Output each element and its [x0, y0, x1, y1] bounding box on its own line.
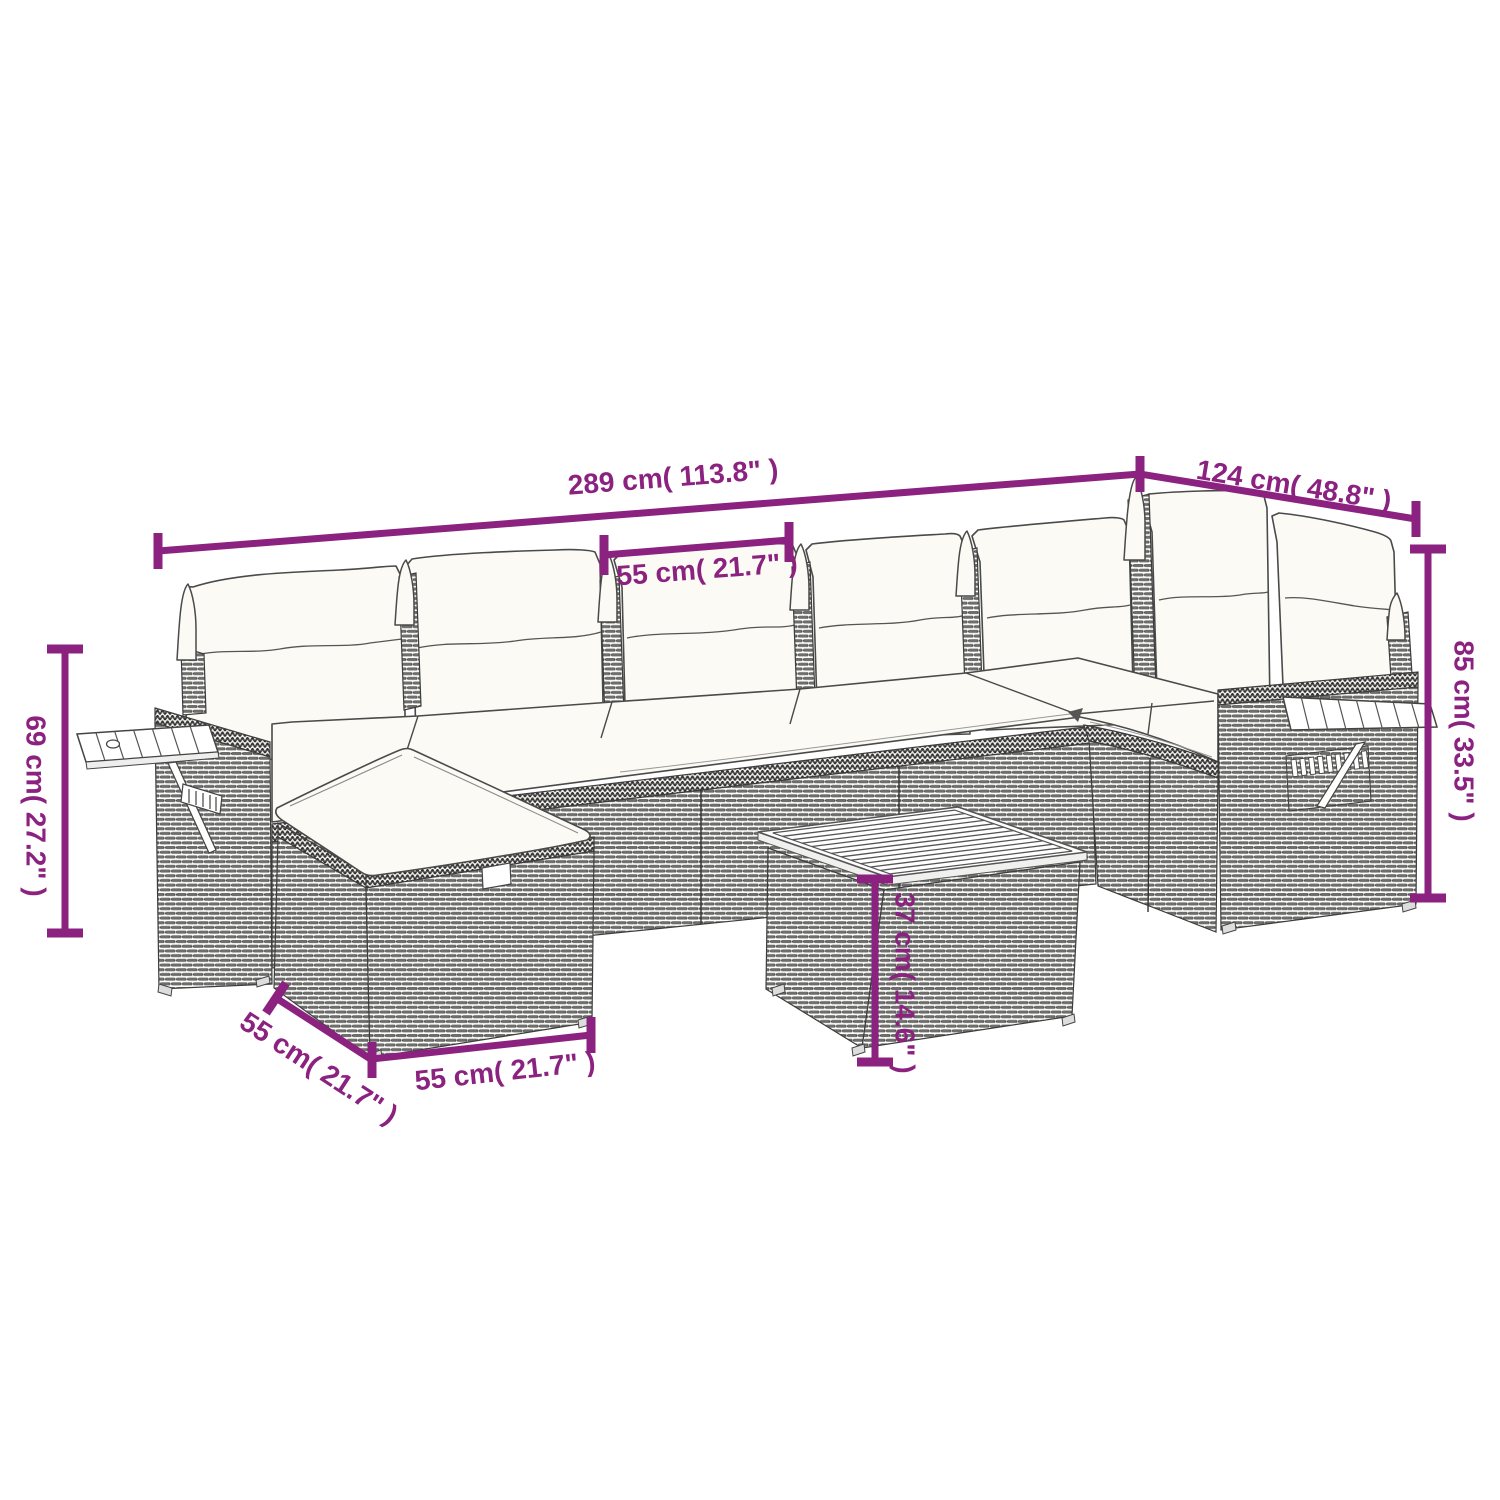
svg-text:37 cm( 14.6" ): 37 cm( 14.6" ) [890, 892, 921, 1073]
svg-text:69 cm( 27.2" ): 69 cm( 27.2" ) [21, 715, 52, 896]
svg-text:85 cm( 33.5" ): 85 cm( 33.5" ) [1449, 640, 1480, 821]
